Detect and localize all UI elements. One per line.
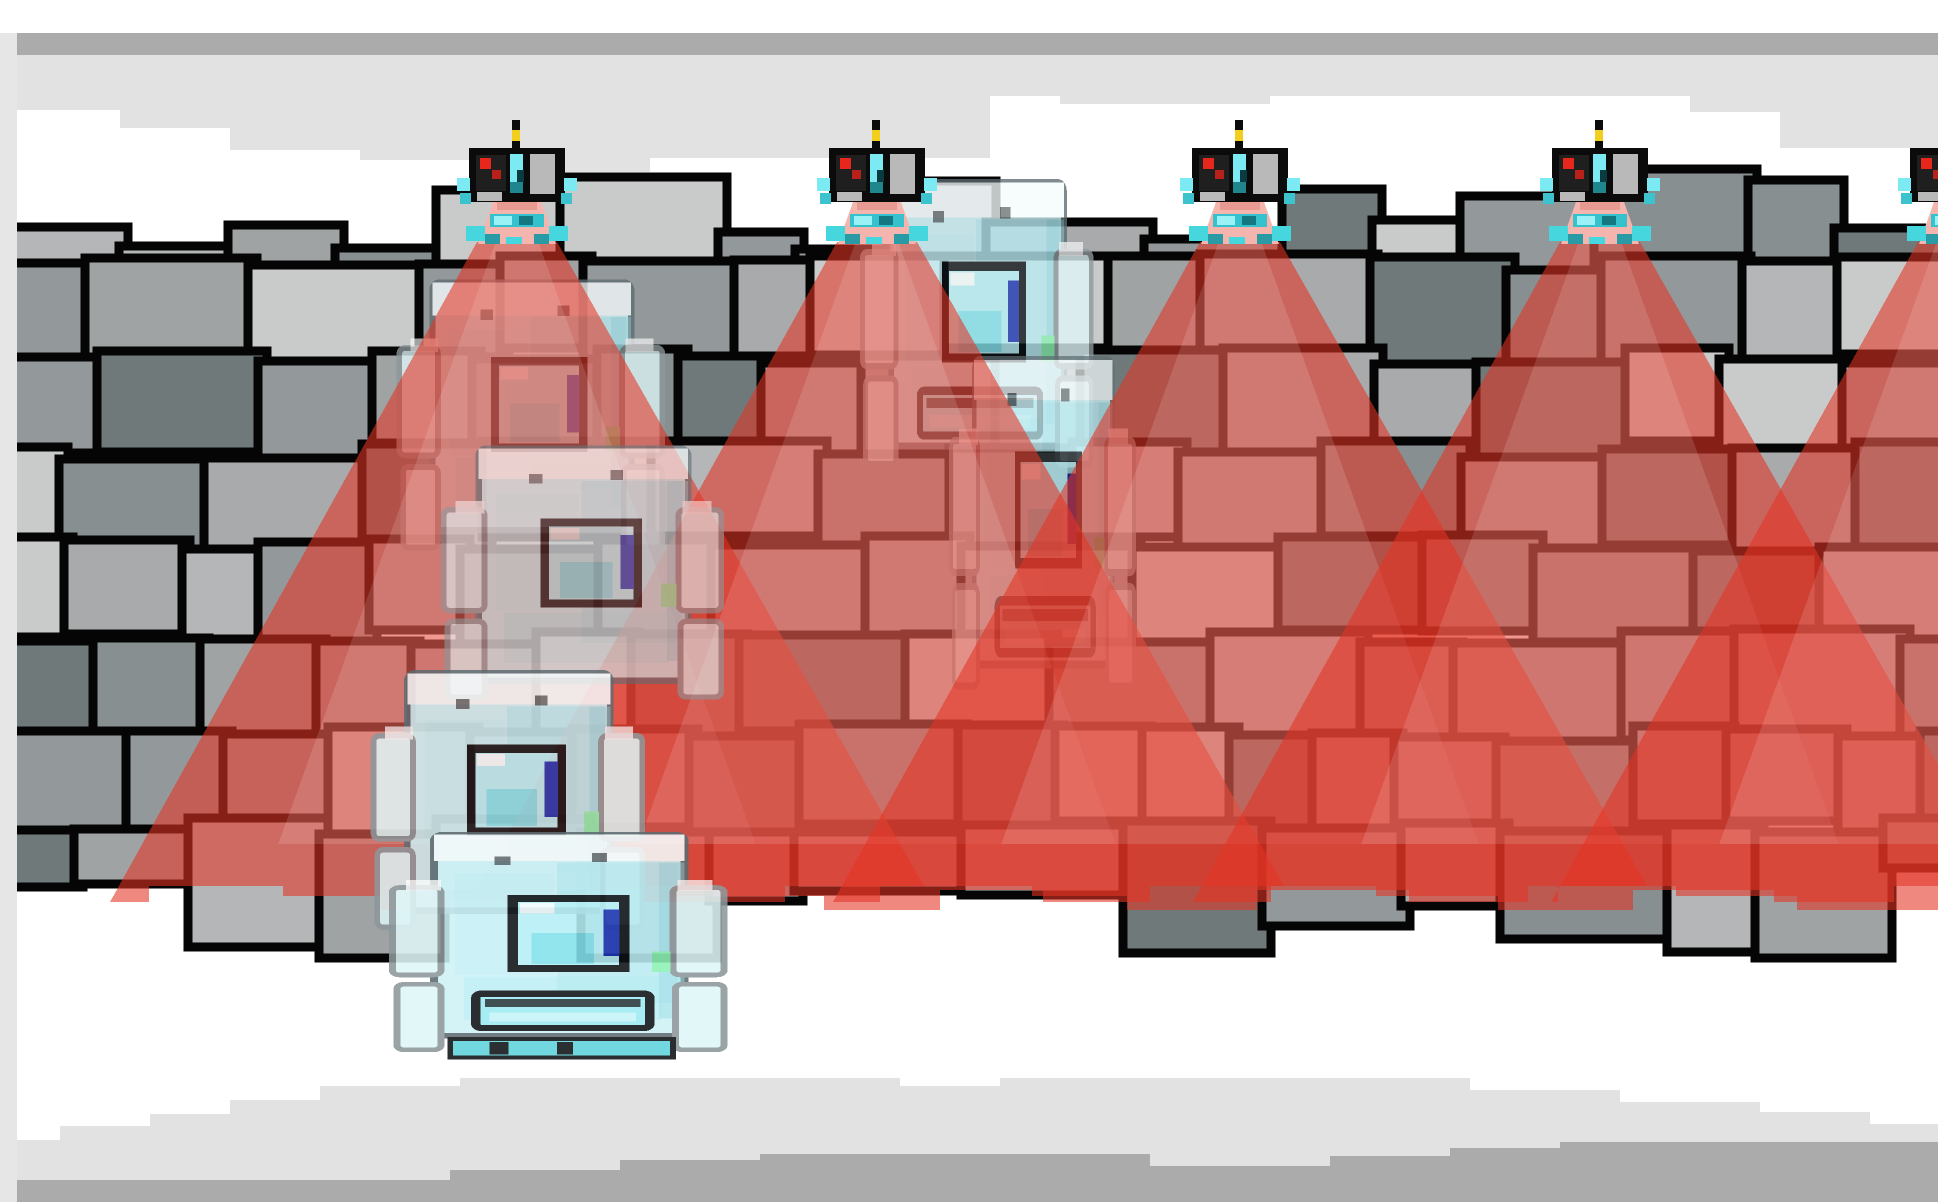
turret-hanger-icon — [817, 178, 830, 191]
turret-lens-column — [510, 182, 523, 193]
turret-antenna-light — [1235, 130, 1243, 141]
turret-hanger-icon — [1647, 178, 1660, 191]
robot-shoulder-highlight — [1059, 242, 1083, 256]
turret-camera-dot — [1575, 170, 1584, 179]
turret-knob — [866, 237, 882, 244]
left-edge-strip — [0, 33, 17, 1202]
turret-camera-dot — [1563, 158, 1574, 169]
turret-base-band — [879, 216, 893, 225]
turret-chin-plate — [837, 192, 862, 201]
turret-hanger-icon — [1540, 178, 1553, 191]
robot-arm-right-lower — [675, 984, 724, 1050]
turret-knob — [1208, 234, 1223, 244]
robot-power-light — [652, 952, 671, 972]
robot-feet — [450, 1039, 673, 1058]
robot-vent-notch — [933, 211, 944, 222]
robot-vent-notch — [592, 853, 607, 862]
turret-camera-dot — [492, 170, 501, 179]
wall-stone — [93, 638, 209, 739]
turret-camera-dot — [852, 170, 861, 179]
turret-knob — [1926, 234, 1938, 244]
turret-knob — [1589, 237, 1605, 244]
robot-vent-notch — [611, 470, 624, 480]
turret-base-band — [1217, 216, 1235, 225]
turret-camera-dot — [480, 158, 491, 169]
turret-hanger-icon — [1898, 178, 1911, 191]
turret-antenna-light — [1595, 130, 1603, 141]
turret-lens-column — [517, 170, 524, 182]
robot-arm-right — [673, 888, 724, 975]
turret-lens-column — [1233, 182, 1246, 193]
turret-knob — [485, 234, 500, 244]
turret-knob — [1907, 226, 1926, 241]
robot-arm-left — [392, 888, 441, 975]
turret-hanger-icon — [1543, 193, 1554, 204]
turret-knob — [1257, 234, 1272, 244]
turret-camera-dot — [1933, 170, 1938, 179]
robot-shoulder-highlight — [682, 501, 711, 514]
turret-side-panel — [1613, 154, 1638, 194]
robot-arm-left — [444, 510, 485, 611]
game-scene — [0, 0, 1938, 1202]
turret-knob — [909, 226, 928, 241]
turret-hanger-icon — [921, 193, 932, 204]
turret-side-panel — [890, 154, 915, 194]
turret-knob — [506, 237, 522, 244]
robot-top-bevel — [479, 449, 689, 480]
turret-knob — [1617, 234, 1632, 244]
turret-knob — [1568, 234, 1583, 244]
turret-base — [1580, 202, 1620, 210]
turret-base-band — [494, 216, 512, 225]
turret-hanger-icon — [820, 193, 831, 204]
turret-hanger-icon — [1183, 193, 1194, 204]
turret-knob — [894, 234, 909, 244]
turret-hanger-icon — [924, 178, 937, 191]
robot-vent-notch — [535, 695, 547, 705]
turret-hanger-icon — [460, 193, 471, 204]
turret-side-panel — [1253, 154, 1278, 194]
robot-vent-notch — [494, 856, 510, 865]
robot-arm-left — [374, 736, 413, 839]
turret-antenna-light — [512, 130, 520, 141]
turret-chin-plate — [1560, 192, 1585, 201]
turret-lens-column — [1593, 182, 1606, 193]
robot-arm-right-lower — [680, 621, 721, 697]
robot-arm-right — [1056, 252, 1091, 366]
turret-camera-dot — [840, 158, 851, 169]
turret-base-band — [1577, 216, 1595, 225]
turret-base-band — [1242, 216, 1256, 225]
turret-base-band — [519, 216, 533, 225]
turret-knob — [1549, 226, 1568, 241]
robot-top-bevel — [434, 835, 685, 862]
wall-stone — [1742, 261, 1846, 361]
turret-base — [1220, 202, 1260, 210]
turret-antenna-light — [872, 130, 880, 141]
robot-shoulder-highlight — [678, 880, 713, 891]
turret-knob — [466, 226, 485, 241]
game-viewport — [0, 0, 1938, 1202]
robot-eye — [513, 898, 624, 968]
turret-knob — [1272, 226, 1291, 241]
turret-side-panel — [530, 154, 555, 194]
turret-knob — [534, 234, 549, 244]
ghost-robot-mid-upper[interactable] — [444, 449, 721, 697]
turret-hanger-icon — [457, 178, 470, 191]
ghost-robot-bottom[interactable] — [392, 835, 724, 1058]
turret-knob — [845, 234, 860, 244]
robot-power-light — [661, 584, 677, 607]
robot-vent-notch — [1000, 207, 1010, 218]
robot-eye — [545, 522, 638, 603]
turret-base-band — [1602, 216, 1616, 225]
turret-chin-plate — [1200, 192, 1225, 201]
robot-shoulder-highlight — [385, 727, 413, 740]
turret-chin-plate — [1918, 192, 1938, 201]
turret-hanger-icon — [1644, 193, 1655, 204]
turret-base — [857, 202, 897, 210]
wall-stone — [1370, 257, 1515, 367]
robot-top-bevel — [407, 673, 610, 704]
turret-knob — [826, 226, 845, 241]
robot-shoulder-highlight — [626, 338, 654, 351]
robot-vent-notch — [529, 474, 543, 484]
robot-arm-right — [679, 510, 722, 611]
turret-chin-plate — [477, 192, 502, 201]
turret-lens-column — [1600, 170, 1607, 182]
turret-lens-column — [870, 182, 883, 193]
robot-vent-notch — [1061, 388, 1069, 401]
robot-panel-shade — [504, 612, 669, 662]
turret-knob — [1189, 226, 1208, 241]
robot-vent-notch — [456, 699, 469, 709]
turret-hanger-icon — [564, 178, 577, 191]
turret-hanger-icon — [1901, 193, 1912, 204]
turret-base — [497, 202, 537, 210]
wall-stone — [64, 540, 190, 634]
turret-hanger-icon — [1284, 193, 1295, 204]
robot-arm-right — [601, 736, 642, 839]
turret-lens-column — [877, 170, 884, 182]
turret-lens-column — [1240, 170, 1247, 182]
turret-knob — [1229, 237, 1245, 244]
robot-power-light — [584, 811, 599, 835]
turret-hanger-icon — [1180, 178, 1193, 191]
turret-camera-dot — [1215, 170, 1224, 179]
turret-hanger-icon — [561, 193, 572, 204]
robot-shoulder-highlight — [605, 727, 633, 740]
turret-camera-dot — [1203, 158, 1214, 169]
turret-knob — [1632, 226, 1651, 241]
robot-arm-left-lower — [397, 984, 441, 1050]
turret-hanger-icon — [1287, 178, 1300, 191]
robot-mouth-grille — [476, 994, 650, 1028]
robot-eye — [471, 749, 561, 832]
wall-stone — [0, 731, 135, 831]
robot-shoulder-highlight — [406, 880, 441, 891]
wall-stone — [97, 351, 267, 452]
turret-camera-dot — [1921, 158, 1932, 169]
turret-base-band — [854, 216, 872, 225]
robot-shoulder-highlight — [455, 501, 484, 514]
turret-knob — [549, 226, 568, 241]
